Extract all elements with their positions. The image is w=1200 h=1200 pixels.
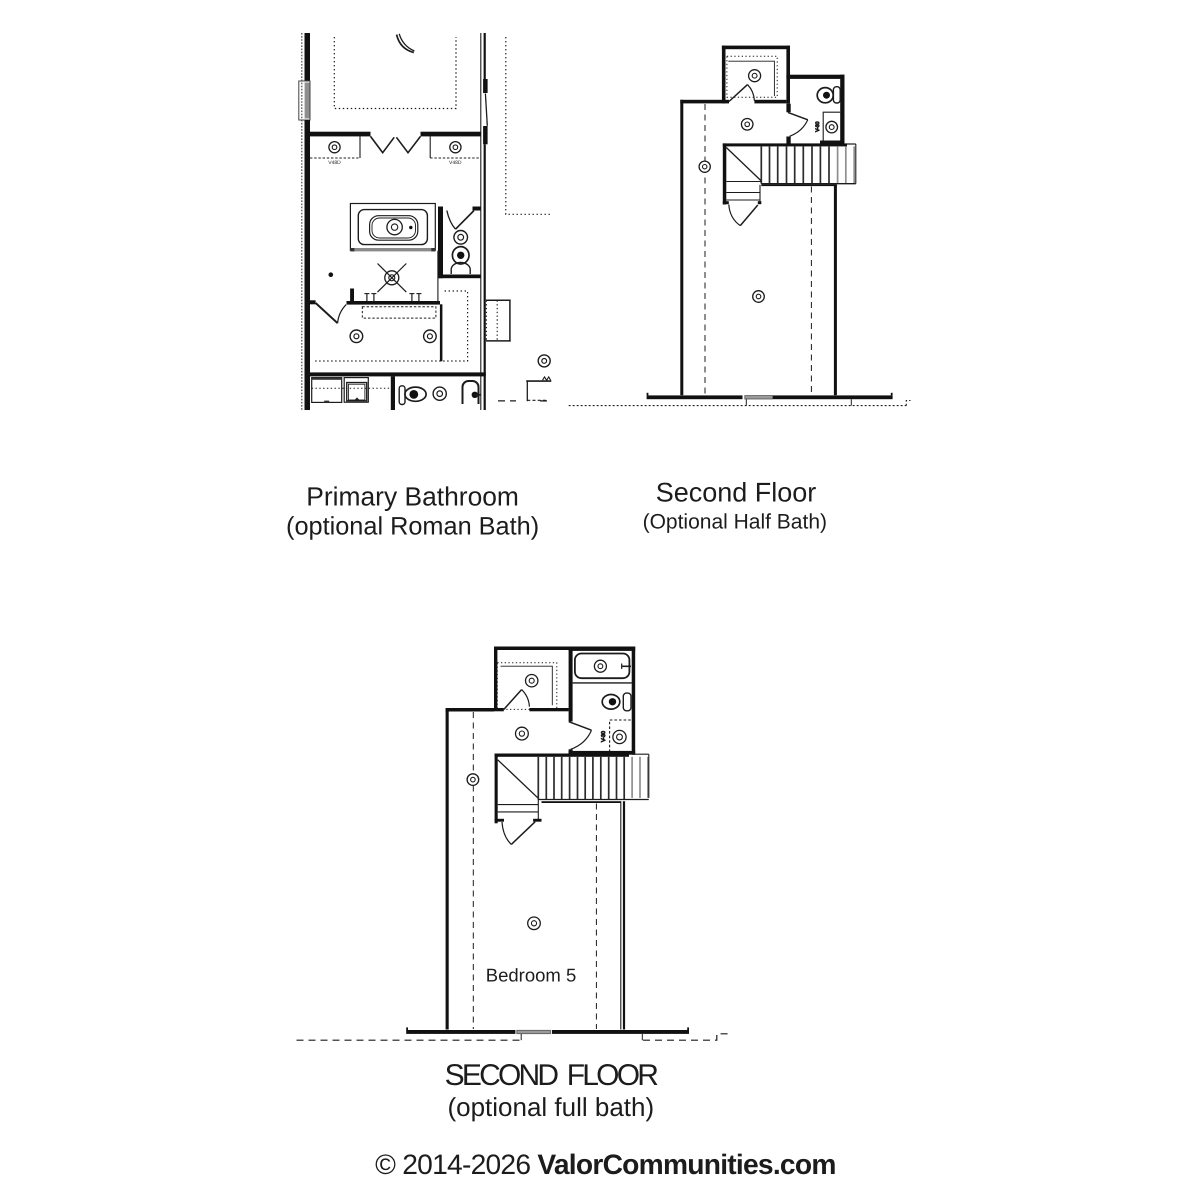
svg-text:Primary Bathroom: Primary Bathroom [306, 482, 519, 512]
svg-text:© 2014-2026 ValorCommunities.c: © 2014-2026 ValorCommunities.com [375, 1148, 836, 1180]
svg-text:(Optional Half Bath): (Optional Half Bath) [643, 511, 827, 534]
svg-text:Second Floor: Second Floor [656, 478, 817, 508]
svg-text:(optional full bath): (optional full bath) [447, 1092, 654, 1122]
svg-text:V48D: V48D [449, 160, 462, 166]
svg-text:V-30: V-30 [815, 121, 821, 132]
svg-text:Bedroom 5: Bedroom 5 [486, 965, 577, 986]
svg-text:(optional Roman Bath): (optional Roman Bath) [286, 513, 539, 541]
svg-text:V-30: V-30 [601, 731, 607, 742]
svg-text:SECOND FLOOR: SECOND FLOOR [445, 1059, 659, 1092]
svg-text:V48D: V48D [328, 160, 341, 166]
